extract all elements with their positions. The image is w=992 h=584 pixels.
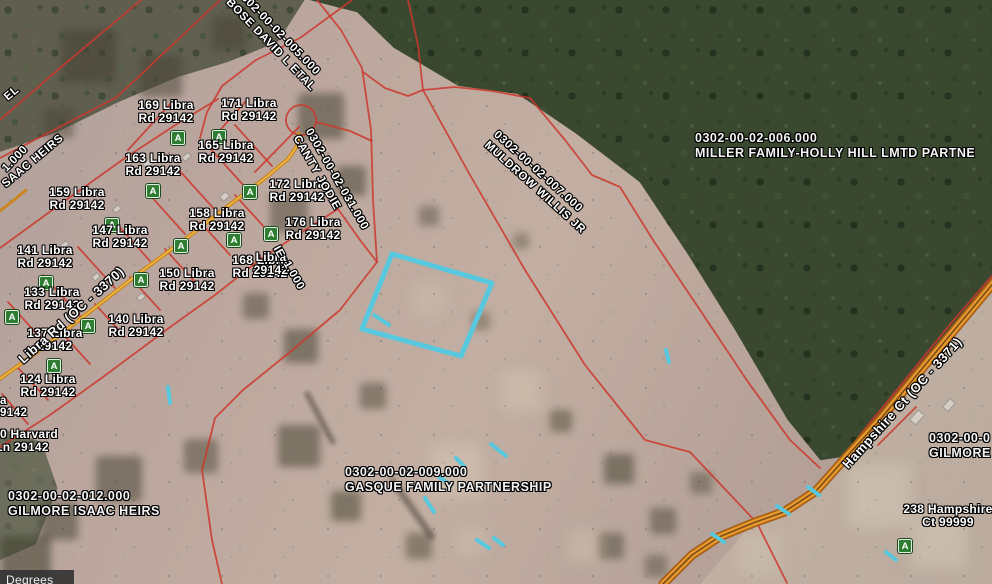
selection-dash <box>425 498 434 512</box>
parcel-boundary-line <box>113 220 150 261</box>
parcel-boundary-line <box>178 169 215 210</box>
selection-dash <box>494 538 503 545</box>
parcel-boundary-line <box>0 209 338 447</box>
road-hampshire-ct <box>663 280 992 584</box>
selection-dash <box>168 387 170 403</box>
selection-dash <box>491 444 506 456</box>
status-bar: Degrees <box>0 570 74 584</box>
selection-dash <box>666 350 669 362</box>
parcel-boundary-line <box>78 247 115 288</box>
parcel-boundary-line <box>43 275 80 316</box>
parcel-boundary-line <box>0 99 218 248</box>
parcel-boundary-line <box>423 90 787 583</box>
culdesac-boundary-circle <box>286 105 316 135</box>
parcel-boundary-line <box>363 72 820 468</box>
parcel-boundary-line <box>95 304 125 337</box>
road-stub-left-edge <box>0 190 26 214</box>
selection-dash <box>886 552 896 560</box>
status-units-label: Degrees <box>6 573 53 584</box>
selection-dash <box>374 315 389 325</box>
map-viewport[interactable]: AAAAAAAAAAAAAA 169 LibraRd 29142171 Libr… <box>0 0 992 584</box>
selected-parcel-outline[interactable] <box>362 254 492 356</box>
parcel-boundary-line <box>208 146 245 187</box>
road-libra-rd-centerline <box>0 134 299 383</box>
parcel-boundary-line <box>408 0 423 90</box>
selection-dash <box>439 477 451 485</box>
parcel-boundary-line <box>200 0 352 138</box>
parcel-boundary-line <box>235 195 265 228</box>
parcel-boundary-line <box>60 331 90 364</box>
parcel-boundary-line <box>316 122 372 141</box>
parcel-boundary-line <box>338 209 377 262</box>
parcel-boundary-line <box>205 100 247 147</box>
parcel-boundary-line <box>148 193 185 234</box>
selection-dash <box>477 540 489 548</box>
selection-dash <box>456 458 464 466</box>
parcel-boundary-line <box>0 0 220 158</box>
parcel-boundary-line <box>200 222 230 255</box>
parcel-boundary-line <box>130 277 160 310</box>
parcel-boundary-line <box>128 102 172 150</box>
parcel-boundary-line <box>165 249 195 282</box>
parcel-boundary-line <box>0 0 141 120</box>
parcel-boundary-line <box>18 368 48 400</box>
map-overlay-graphics <box>0 0 992 584</box>
parcel-boundary-line <box>202 0 377 584</box>
parcel-boundary-line <box>8 302 45 343</box>
parcel-boundary-line <box>2 394 28 424</box>
